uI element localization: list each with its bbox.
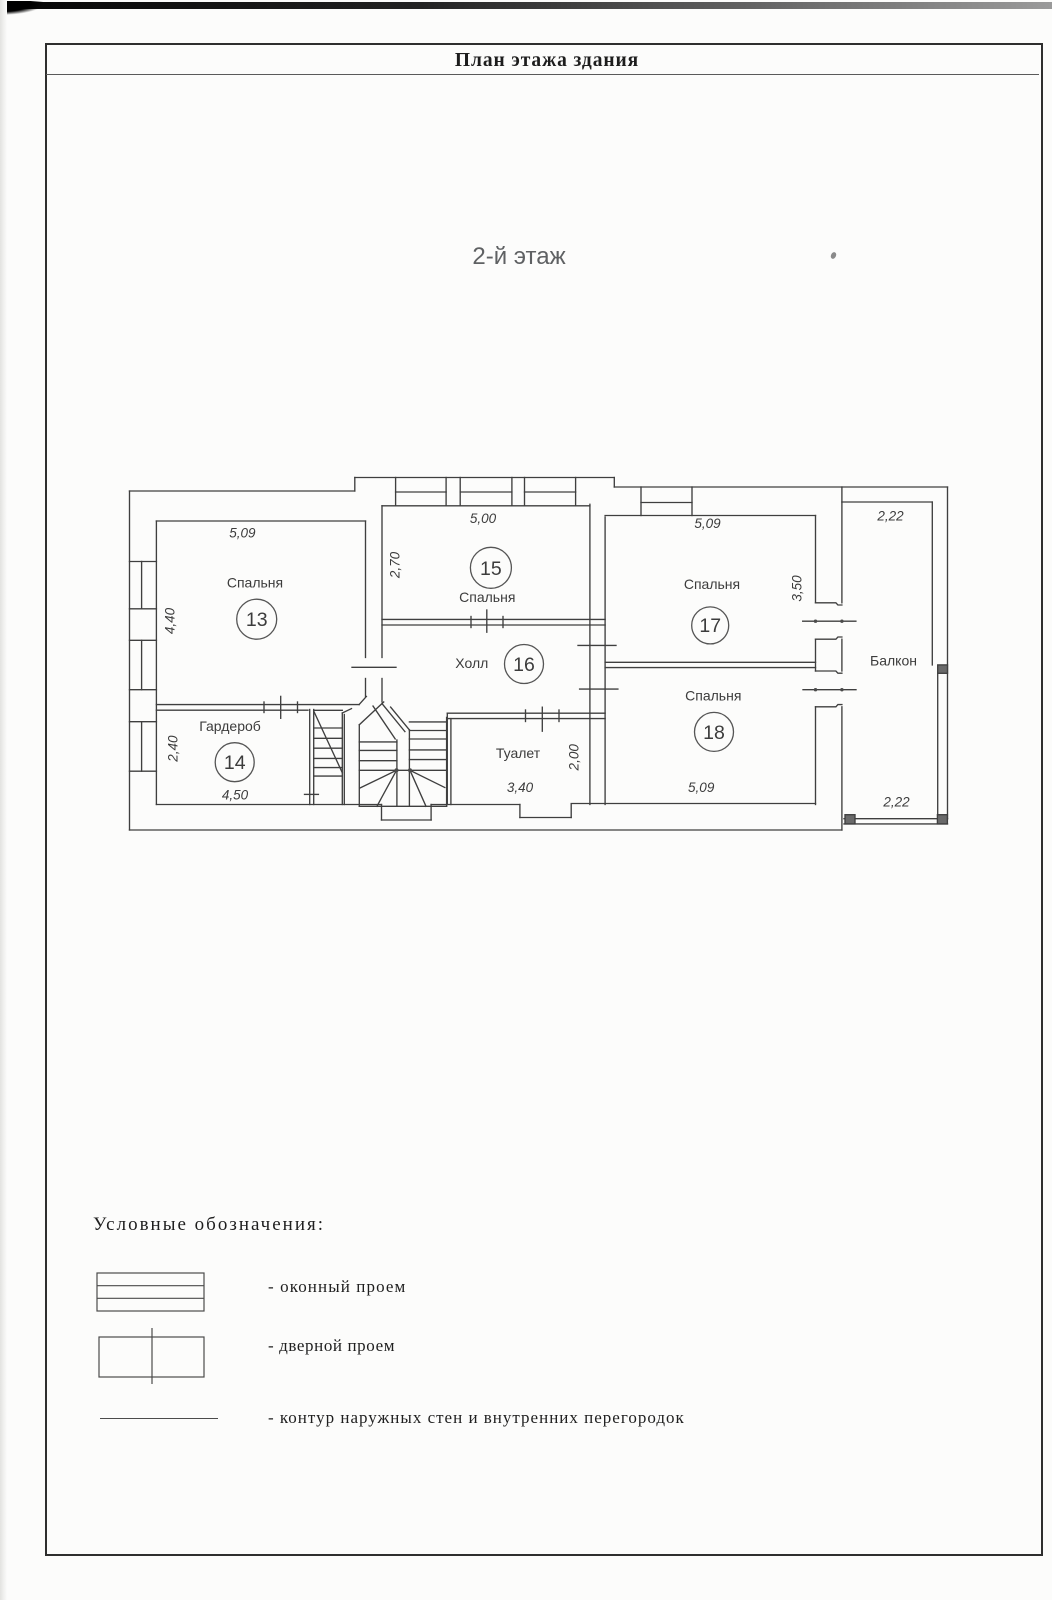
svg-text:18: 18 bbox=[703, 722, 725, 744]
svg-text:5,09: 5,09 bbox=[229, 526, 256, 541]
svg-text:3,40: 3,40 bbox=[507, 780, 534, 795]
svg-text:3,50: 3,50 bbox=[789, 575, 804, 602]
svg-text:14: 14 bbox=[224, 752, 246, 774]
svg-text:Туалет: Туалет bbox=[496, 745, 541, 761]
svg-text:13: 13 bbox=[246, 609, 268, 631]
svg-text:17: 17 bbox=[699, 615, 721, 637]
svg-text:5,09: 5,09 bbox=[688, 780, 715, 795]
svg-text:4,50: 4,50 bbox=[222, 787, 249, 802]
svg-text:Спальня: Спальня bbox=[685, 688, 741, 704]
svg-text:5,09: 5,09 bbox=[694, 516, 721, 531]
svg-text:2,00: 2,00 bbox=[566, 744, 581, 772]
svg-text:5,00: 5,00 bbox=[470, 511, 497, 526]
svg-text:2,22: 2,22 bbox=[876, 508, 904, 523]
svg-text:Спальня: Спальня bbox=[227, 574, 283, 590]
svg-text:Балкон: Балкон bbox=[870, 653, 917, 669]
svg-text:2,40: 2,40 bbox=[165, 735, 180, 763]
svg-text:2,22: 2,22 bbox=[882, 795, 910, 810]
svg-text:Спальня: Спальня bbox=[684, 576, 740, 592]
svg-text:4,40: 4,40 bbox=[162, 607, 177, 634]
svg-text:15: 15 bbox=[480, 558, 502, 580]
svg-text:2,70: 2,70 bbox=[388, 551, 403, 579]
svg-text:Гардероб: Гардероб bbox=[199, 718, 261, 734]
svg-text:Спальня: Спальня bbox=[459, 589, 515, 605]
svg-text:16: 16 bbox=[513, 654, 535, 676]
svg-text:Холл: Холл bbox=[455, 655, 488, 671]
